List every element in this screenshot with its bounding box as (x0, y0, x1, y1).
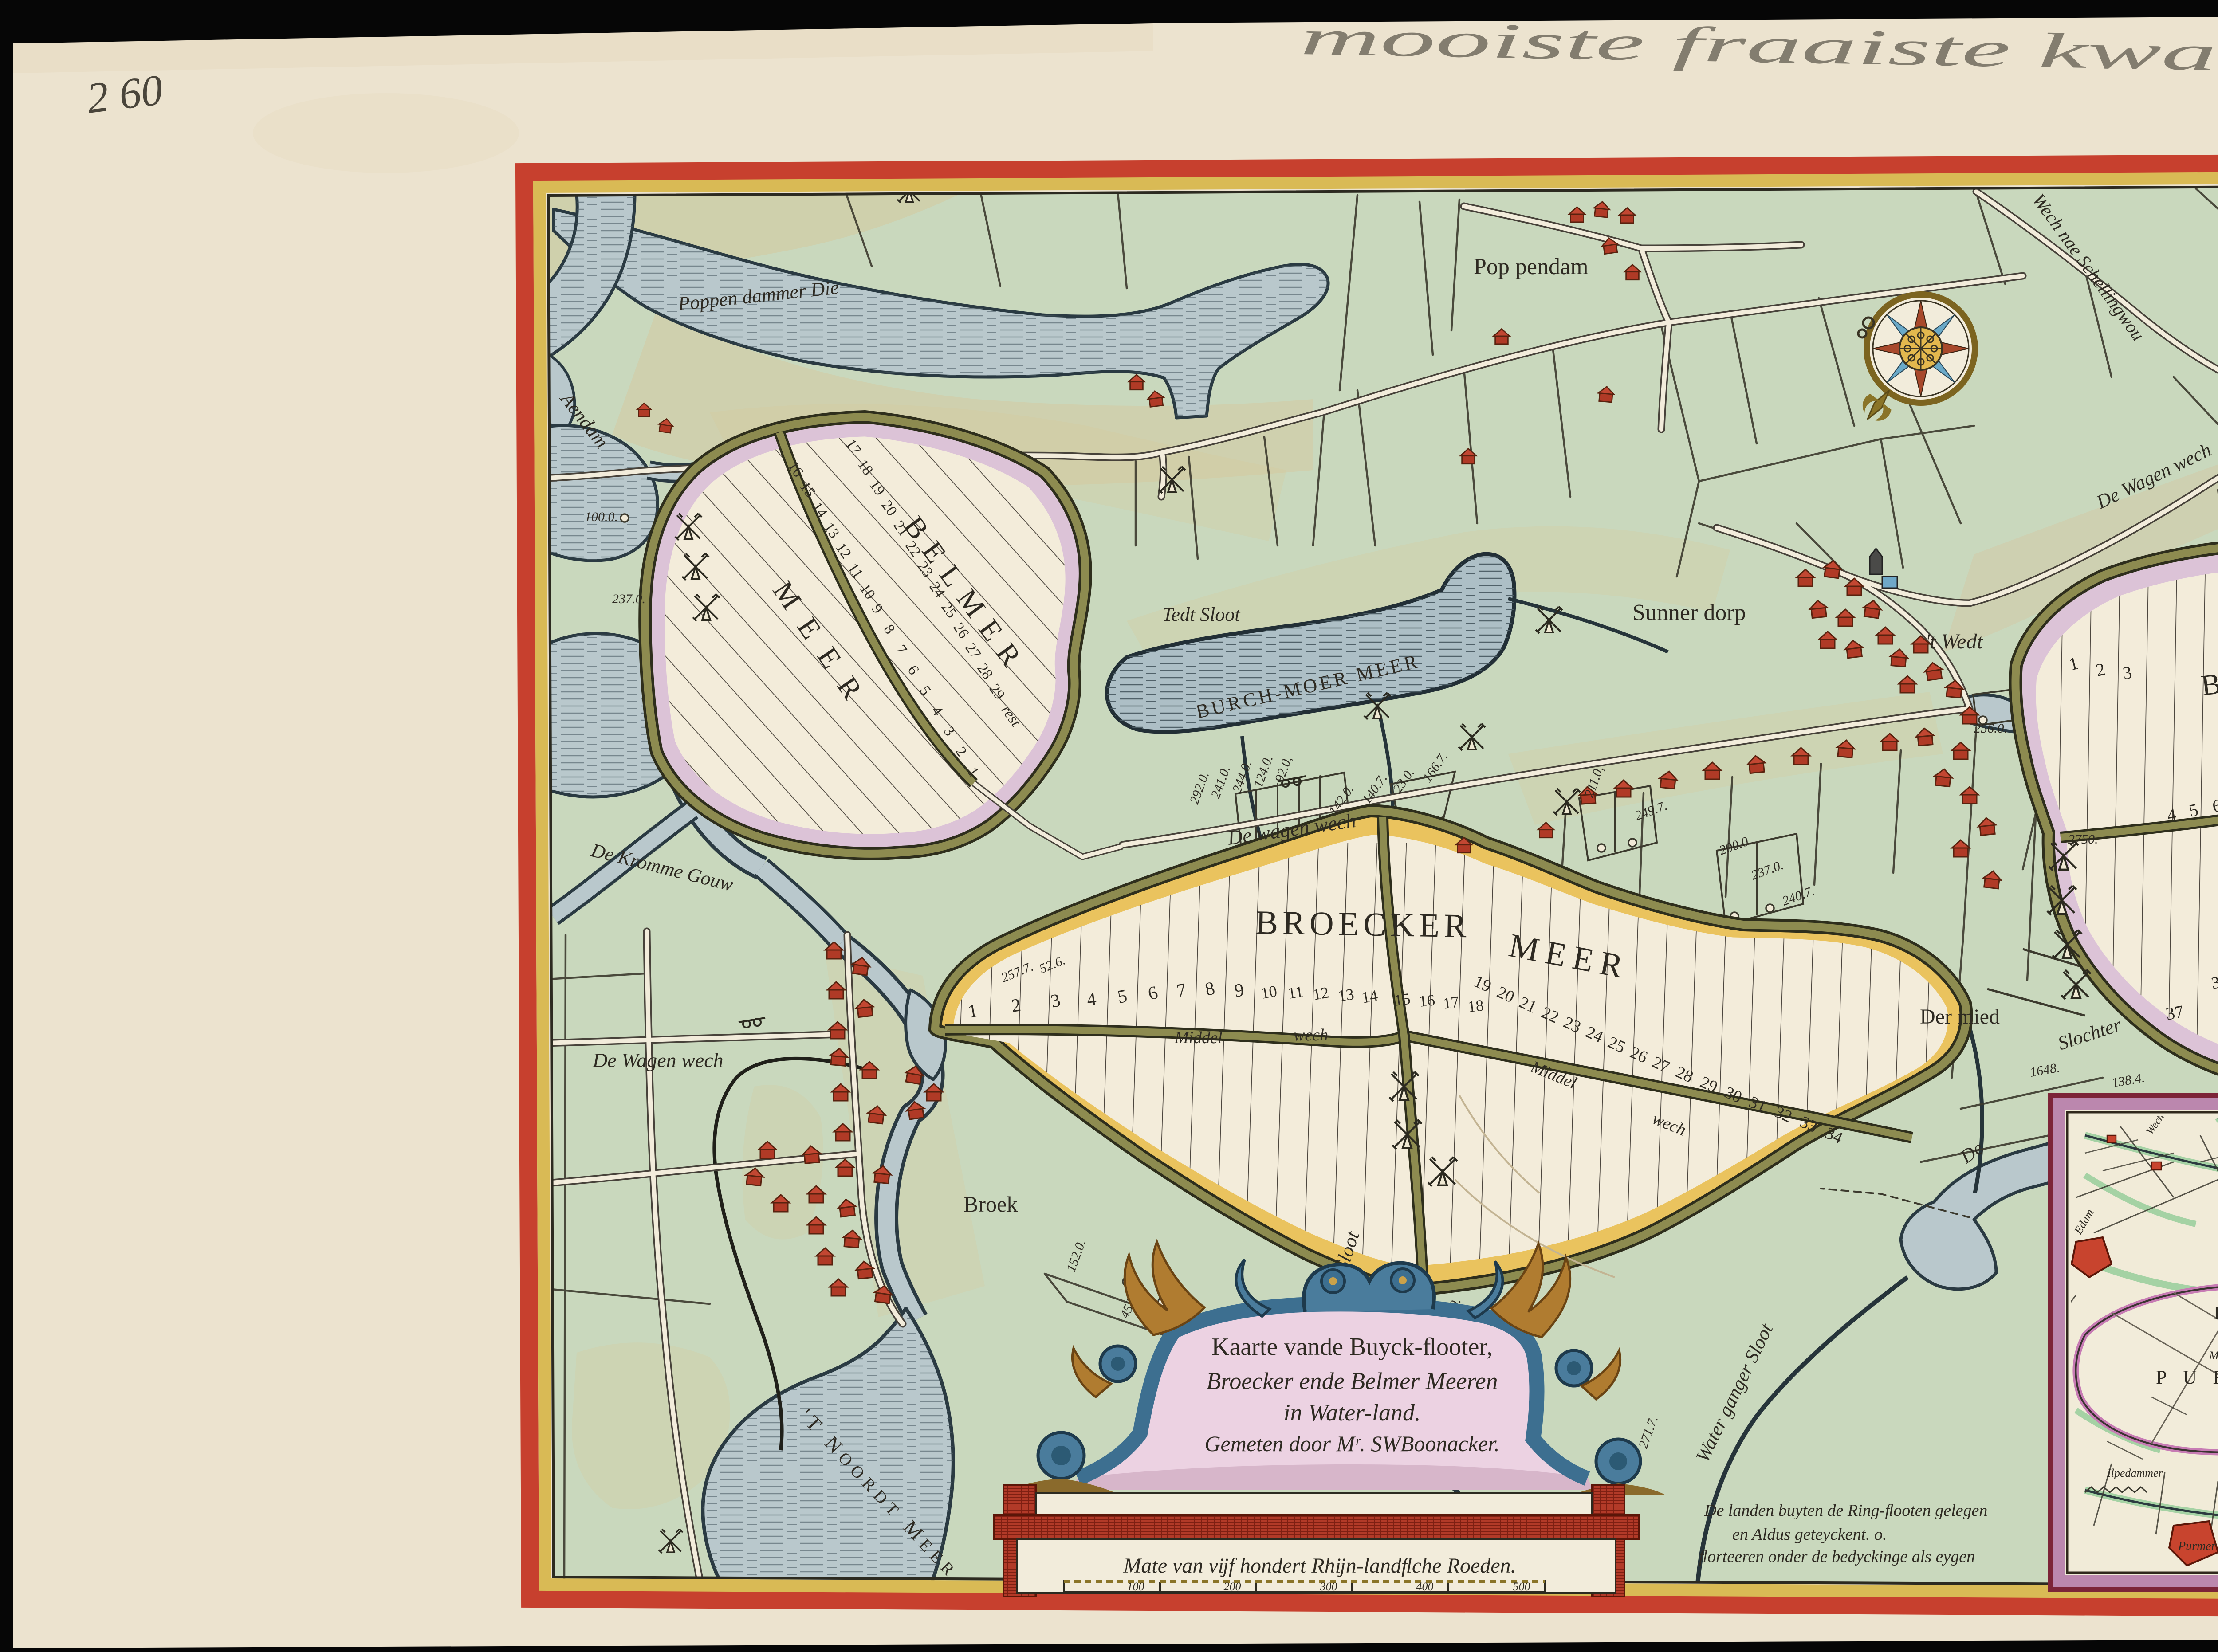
svg-text:2 60: 2 60 (84, 66, 165, 123)
svg-text:17: 17 (1442, 993, 1460, 1012)
svg-text:Sunner dorp: Sunner dorp (1632, 600, 1746, 625)
svg-text:ﬂorteeren onder de bedyckinge: ﬂorteeren onder de bedyckinge als eygen (1699, 1547, 1975, 1566)
svg-text:en Aldus geteyckent. o.: en Aldus geteyckent. o. (1732, 1525, 1887, 1544)
svg-text:100: 100 (1127, 1580, 1144, 1593)
svg-text:16: 16 (1418, 991, 1436, 1010)
svg-text:Kaarte vande Buyck-ﬂooter,: Kaarte vande Buyck-ﬂooter, (1211, 1333, 1493, 1361)
svg-text:Middel: Middel (2209, 1349, 2218, 1362)
svg-text:15: 15 (1393, 989, 1412, 1009)
svg-text:300: 300 (1320, 1580, 1337, 1593)
svg-text:DE: DE (2214, 1302, 2218, 1324)
svg-text:PURMER: PURMER (2156, 1366, 2218, 1388)
svg-text:wech: wech (1294, 1026, 1328, 1044)
svg-text:237.0.: 237.0. (612, 592, 645, 606)
svg-text:500: 500 (1513, 1580, 1530, 1593)
svg-text:100.0.: 100.0. (585, 510, 618, 524)
svg-text:11: 11 (1287, 982, 1305, 1002)
svg-text:Mate van vĳf hondert Rhĳn-l: Mate van vĳf hondert Rhĳn-landﬂche Roede… (1123, 1554, 1516, 1577)
svg-text:Ilpedammer: Ilpedammer (2107, 1467, 2163, 1479)
svg-text:Broecker ende Belmer Meeren: Broecker ende Belmer Meeren (1206, 1368, 1498, 1394)
svg-text:12: 12 (1311, 983, 1330, 1004)
svg-text:400: 400 (1416, 1580, 1434, 1593)
svg-text:'t Wedt: 't Wedt (1925, 630, 1983, 653)
svg-text:De landen buyten de Ring-ﬂoote: De landen buyten de Ring-ﬂooten gelegen (1704, 1501, 1987, 1520)
svg-text:2750.: 2750. (2068, 832, 2098, 847)
svg-text:256.0.: 256.0. (1974, 721, 2007, 736)
svg-text:Gemeten door Mʳ. SWBoonacker.: Gemeten door Mʳ. SWBoonacker. (1204, 1431, 1499, 1456)
svg-text:Purmer end: Purmer end (2178, 1539, 2218, 1553)
svg-text:BROECKER: BROECKER (1255, 904, 1471, 945)
svg-text:37: 37 (2164, 1001, 2185, 1024)
svg-text:18: 18 (1467, 996, 1485, 1016)
svg-text:200: 200 (1224, 1580, 1241, 1593)
svg-text:Broek: Broek (963, 1192, 1018, 1216)
svg-text:10: 10 (1259, 982, 1278, 1002)
svg-text:Middel: Middel (1174, 1028, 1223, 1047)
svg-text:14: 14 (1360, 986, 1379, 1007)
svg-text:De Wagen wech: De Wagen wech (592, 1049, 724, 1071)
svg-text:13: 13 (1337, 985, 1355, 1005)
svg-text:Der mied: Der mied (1920, 1005, 2000, 1028)
svg-text:in Water-land.: in Water-land. (1284, 1399, 1421, 1426)
svg-text:Pop pendam: Pop pendam (1474, 254, 1589, 279)
svg-text:Tedt Sloot: Tedt Sloot (1162, 604, 1241, 625)
